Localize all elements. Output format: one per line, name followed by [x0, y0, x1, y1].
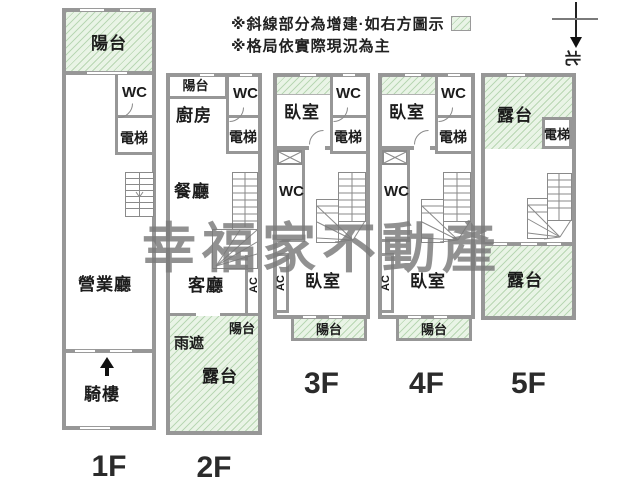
shaft-x-box — [277, 150, 303, 165]
compass: 北 — [552, 2, 600, 72]
window-mark — [521, 242, 537, 246]
compass-north-label: 北 — [562, 50, 586, 66]
window-mark — [303, 315, 316, 319]
room-label: WC — [336, 85, 361, 102]
door-arc-icon — [118, 103, 133, 118]
door-arc-icon — [309, 130, 324, 145]
window-mark — [547, 242, 561, 246]
room-label: 廚房 — [176, 101, 212, 126]
room-label: 陽台 — [421, 319, 447, 338]
floor-label-5f: 5F — [481, 367, 576, 401]
room-label: WC — [279, 183, 304, 200]
up-arrow-stem — [105, 367, 109, 376]
shaft-x-box — [382, 150, 408, 165]
room-label: 營業廳 — [78, 270, 132, 295]
addition-strip-3f — [277, 77, 331, 95]
room-label: WC — [384, 183, 409, 200]
door-arc-icon — [414, 130, 429, 145]
window-mark — [80, 8, 104, 12]
window-mark — [329, 315, 342, 319]
window-mark — [120, 8, 140, 12]
window-mark — [434, 315, 447, 319]
hatch-sample-icon — [451, 16, 471, 31]
legend-line-2: ※格局依實際現況為主 — [231, 35, 391, 56]
room-label: 電梯 — [120, 128, 148, 148]
room-label: 臥室 — [389, 98, 425, 123]
floor-label-1f: 1F — [62, 450, 156, 480]
stairs-icon — [526, 173, 573, 243]
compass-crossbar — [552, 18, 598, 20]
floor-label-2f: 2F — [166, 451, 262, 480]
door-gap — [309, 146, 325, 150]
room-label: WC — [233, 85, 258, 102]
watermark: 幸福家不動產 — [142, 204, 502, 283]
room-label: 騎樓 — [84, 380, 120, 405]
floor-label-3f: 3F — [273, 367, 370, 401]
room-label: WC — [441, 85, 466, 102]
room-label: 電梯 — [439, 127, 467, 147]
room-label: 電梯 — [334, 127, 362, 147]
room-label: 電梯 — [229, 127, 257, 147]
legend-line-1-text: ※斜線部分為增建·如右方圖示 — [231, 16, 445, 33]
window-mark — [507, 73, 525, 77]
room-balcony-1f: 陽台 — [62, 8, 156, 71]
window-mark — [110, 349, 132, 353]
floor-label-4f: 4F — [378, 367, 475, 401]
window-mark — [75, 349, 95, 353]
window-mark — [80, 426, 110, 430]
room-balcony-2f: 陽台 — [166, 73, 228, 99]
floorplan-sheet: ※斜線部分為增建·如右方圖示 ※格局依實際現況為主 北 陽台 WC 電梯 營業廳 — [0, 0, 640, 480]
addition-strip-4f — [382, 77, 436, 95]
room-label: 臥室 — [284, 98, 320, 123]
door-gap — [414, 146, 430, 150]
room-label: 餐廳 — [174, 177, 210, 202]
room-label: 陽台 — [316, 319, 342, 338]
compass-arrow-icon — [570, 37, 582, 48]
window-mark — [408, 315, 421, 319]
legend-line-1: ※斜線部分為增建·如右方圖示 — [231, 13, 471, 34]
room-label: 陽台 — [91, 29, 127, 54]
room-label: WC — [122, 84, 147, 101]
compass-needle — [575, 2, 577, 42]
room-label: 陽台 — [182, 75, 208, 94]
